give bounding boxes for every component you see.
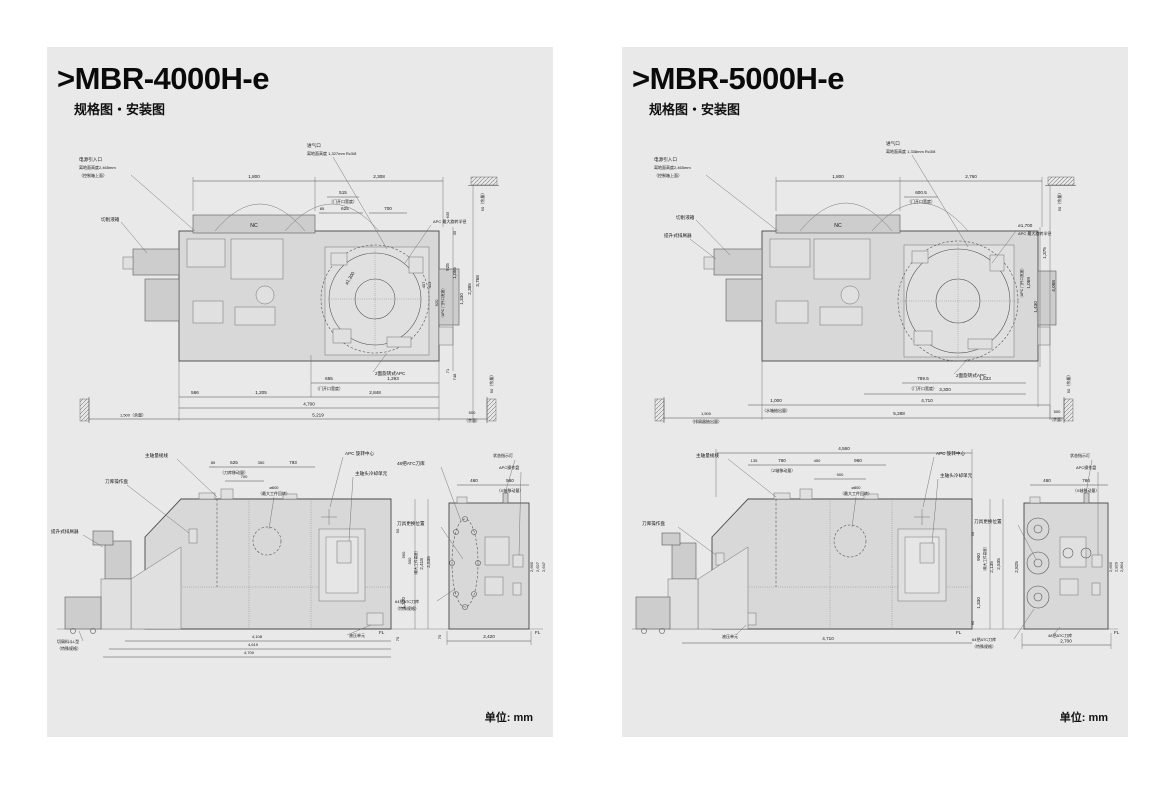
dim-50: 50 [395,528,400,533]
model-title: >MBR-4000H-e [57,61,269,97]
catalog-page: >MBR-4000H-e 规格图・安装图 [0,0,1170,799]
power-inlet-label: 电源引入口 [79,156,102,163]
dim-2418: 2,418 [419,558,424,570]
atc64-note: （特殊规格） [972,643,996,649]
leader-line [131,175,195,231]
max-workpiece-height-note: （最大工件高度） [982,545,987,574]
machine-front-body [145,489,391,629]
dim-35: 35 [452,230,457,235]
dim-500: 500 [1054,409,1061,414]
front-side-view-drawing: 4,560 135 760 450 960 （Z轴移动量） 900 ⌀800 （… [624,437,1124,663]
dim-760: 760 [778,458,786,463]
dim-407: 407 [421,281,426,288]
air-inlet-height: 离地面高度 1,338mm Rc3/8 [886,148,936,154]
dim-515: 515 [339,190,347,195]
dim-2627: 2,627 [535,561,540,572]
dim-2665: 2,665 [529,561,534,572]
door-width-note-2: （门开口宽度） [909,385,937,391]
dim-900: 900 [407,557,412,564]
dim-900: 900 [976,553,981,561]
dim-2647: 2,647 [541,561,546,572]
dim-4700: 4,700 [244,650,255,655]
power-inlet-note: （控制箱上面） [654,172,682,178]
door-width-note: （门开口宽度） [329,198,357,204]
conveyor-pullout-note: （排屑器抽出量） [690,418,722,424]
dim-1205: 1,205 [255,390,267,395]
front-side-view-drawing: 提升式排屑器 切屑料斗L型 （特殊规格） 主轴量规线 85 625 350 79… [49,437,549,663]
atc64-label: 64把ATC刀库 [395,598,419,604]
dim-350: 350 [258,460,265,465]
apc-center-label: APC 旋转中心 [345,450,375,457]
plan-view-drawing: NC 1,800 2,760 600.5 （门开口宽度） 电源引入口 离地面高度… [650,131,1100,427]
dim-70-side: 70 [437,634,442,639]
dim-2700: 2,700 [1060,639,1072,644]
dim-2665: 2,665 [1108,561,1113,572]
workpiece-dia-note: （最大工件回转） [840,490,872,496]
dim-748: 748 [452,373,457,380]
dim-900-top: 900 [837,472,844,477]
dim-2535: 2,535 [426,556,431,568]
machine-plan-body [123,204,459,361]
dim-460: 460 [1043,478,1051,483]
dim-85: 85 [320,206,325,211]
dim-2760: 2,760 [965,174,977,179]
power-inlet-height: 离地面高度2,465mm [654,164,691,170]
chip-conveyor-label: 提升式排屑器 [51,528,79,535]
coolant-tank-label: 切削液箱 [101,216,120,223]
nc-cabinet-label: NC [250,223,258,229]
unit-note: 单位: mm [1060,709,1108,725]
dim-700: 700 [384,206,392,211]
dim-1375: 1,375 [1042,247,1047,259]
workpiece-dia-note: （最大工件回转） [258,490,290,496]
power-inlet-label: 电源引入口 [654,156,677,163]
workpiece-dia-label: ⌀600 [269,485,279,490]
tool-change-label: 刀具更换位置 [974,518,1002,525]
floor-level-label-2: FL [535,630,541,635]
hydraulic-unit-label: 液压单元 [349,632,365,638]
margin-right-label: 50（余量） [488,373,494,393]
dim-4560: 4,560 [838,446,850,451]
atc48-label: 48把ATC刀库 [1048,632,1072,638]
air-inlet-height: 离地面高度 1,327mm Rc3/8 [307,150,357,156]
dim-2420: 2,420 [483,634,495,639]
floor-level-label-2: FL [1114,630,1120,635]
machine-side-body [449,493,529,629]
dim-2864: 2,864 [1119,561,1124,572]
max-workpiece-height-note: （最大工件高度） [413,549,418,578]
dim-135: 135 [751,458,758,463]
dim-625: 625 [341,206,349,211]
dim-635: 635 [445,211,450,218]
gauge-line-label: 主轴量规线 [696,452,719,459]
tank-pullout-note: （水箱抽出量） [762,407,790,413]
dim-625: 625 [230,460,238,465]
status-light-label: 状态指示灯 [493,452,513,458]
magazine-panel-label: 刀库操作盘 [105,478,128,485]
gauge-line-label: 主轴量规线 [145,452,168,459]
apc-panel-label: APC操作盘 [1076,464,1096,470]
dim-960: 960 [854,458,862,463]
margin-top-label: 50（余量） [1056,191,1062,211]
dim-3768: 3,768 [475,275,480,287]
dim-4088: 4,088 [1051,280,1056,292]
dim-5219: 5,219 [312,413,324,418]
dim-560-x: 560 [506,478,514,483]
dim-500: 500 [469,410,476,415]
apc-radius-label: APC 最大旋转半径 [1018,230,1051,236]
dim-70: 70 [395,636,400,641]
dim-1055: 1,055 [452,267,457,279]
spindle-cooling-label: 主轴头冷却单元 [940,472,973,479]
dim-2308: 2,308 [373,174,385,179]
floor-level-label: FL [379,630,385,635]
leader-line [706,175,778,231]
x-axis-travel-note: （X轴移动量） [497,487,524,493]
dim-460: 460 [470,478,478,483]
atc64-note: （特殊规格） [395,605,419,611]
unit-note: 单位: mm [485,709,533,725]
dim-50: 50 [970,531,975,536]
door-width-note: （门开口宽度） [907,198,935,204]
dim-600-5: 600.5 [915,190,927,195]
dim-2829: 2,829 [1114,561,1119,572]
dim-2848: 2,848 [369,390,381,395]
tool-change-label: 刀具更换位置 [397,520,425,527]
dim-4710: 4,710 [921,398,933,403]
dim-793: 793 [289,460,297,465]
apc-center-label: APC 旋转中心 [936,450,966,457]
dim-1500: 1,500 [701,411,712,416]
margin-note: （余量） [1049,416,1065,422]
dim-1800: 1,800 [248,174,260,179]
nc-cabinet-label: NC [834,223,842,229]
apc-diameter-label: ⌀1,700 [1018,223,1033,228]
dim-1293: 1,293 [387,376,399,381]
dim-2135: 2,135 [989,561,994,573]
dim-4700: 4,700 [303,402,315,407]
margin-top-label: 50（余量） [479,191,485,211]
apc-door-width-note: （APC 门开口宽度） [440,286,445,320]
model-subtitle: 规格图・安装图 [649,99,740,118]
machine-front-body [712,489,972,629]
dim-760-x: 760 [1082,478,1090,483]
chip-conveyor-label: 提升式排屑器 [664,232,692,239]
dim-450: 450 [814,458,821,463]
air-inlet-label: 进气口 [886,140,900,147]
atc64-label: 64把ATC刀库 [972,636,996,642]
spindle-cooling-label: 主轴头冷却单元 [355,470,388,477]
apc-panel-label: APC操作盘 [499,464,519,470]
dim-1069: 1,069 [1026,277,1031,289]
dim-2825: 2,825 [1014,561,1019,573]
dim-1800: 1,800 [832,174,844,179]
chip-bucket-label: 切屑料斗L型 [57,638,79,644]
dim-560: 560 [401,551,406,558]
dim-1330: 1,330 [976,597,981,609]
leader-line [121,222,147,253]
magazine-panel-label: 刀库操作盘 [642,520,665,527]
hydraulic-unit-label: 液压单元 [722,633,738,639]
door-width-note-2: （门开口宽度） [315,385,343,391]
z-axis-travel-note: （Z轴移动量） [769,467,795,473]
power-inlet-height: 离地面高度2,465mm [79,164,116,170]
leader-line [696,220,730,255]
dim-789-5: 789.5 [917,376,929,381]
dim-85: 85 [211,460,216,465]
workpiece-dia-label: ⌀800 [851,485,861,490]
dim-4619: 4,619 [248,642,259,647]
dim-566: 566 [191,390,199,395]
dim-1000: 1,000 [770,398,782,403]
air-inlet-label: 进气口 [307,142,321,149]
panel-mbr-4000h-e: >MBR-4000H-e 规格图・安装图 [47,47,553,737]
power-inlet-note: （控制箱上面） [79,172,107,178]
dim-413: 413 [427,281,432,288]
atc48-label: 48把ATC刀库 [397,460,425,467]
dim-1330: 1,330 [459,293,464,305]
apc-door-width-note: （APC 门开口宽度） [1019,266,1024,300]
leader-line [690,239,716,259]
dim-925: 925 [445,263,450,271]
chip-bucket-note: （特殊规格） [57,645,81,651]
margin-right-label: 50（余量） [1065,373,1071,393]
leader-line [79,631,83,641]
dim-71: 71 [445,368,450,373]
machine-side-body [1024,493,1108,629]
dim-920: 920 [434,299,439,306]
dim-4108: 4,108 [252,634,263,639]
floor-level-label: FL [956,630,962,635]
dim-2385: 2,385 [467,283,472,295]
coolant-tank-label: 切削液箱 [676,214,695,221]
dim-1430: 1,430 [1033,301,1038,313]
dim-4710: 4,710 [822,636,834,641]
dim-655: 655 [325,376,333,381]
dim-5288: 5,288 [893,411,905,416]
dim-1633: 1,633 [979,376,991,381]
model-subtitle: 规格图・安装图 [74,99,165,118]
dim-90: 90 [970,620,975,625]
dim-3300: 3,300 [939,387,951,392]
dim-700: 700 [241,474,248,479]
panel-mbr-5000h-e: >MBR-5000H-e 规格图・安装图 [622,47,1128,737]
leader-line [728,459,776,497]
dim-1500-margin: 1,500（余量） [120,412,146,418]
status-light-label: 状态指示灯 [1070,452,1090,458]
dim-2535: 2,535 [996,558,1001,570]
machine-plan-body [704,203,1056,361]
model-title: >MBR-5000H-e [632,61,844,97]
plan-view-drawing: NC 1,800 2,308 515 （门开口宽度） 85 625 700 电源… [75,131,525,427]
margin-note: （余量） [464,417,480,423]
